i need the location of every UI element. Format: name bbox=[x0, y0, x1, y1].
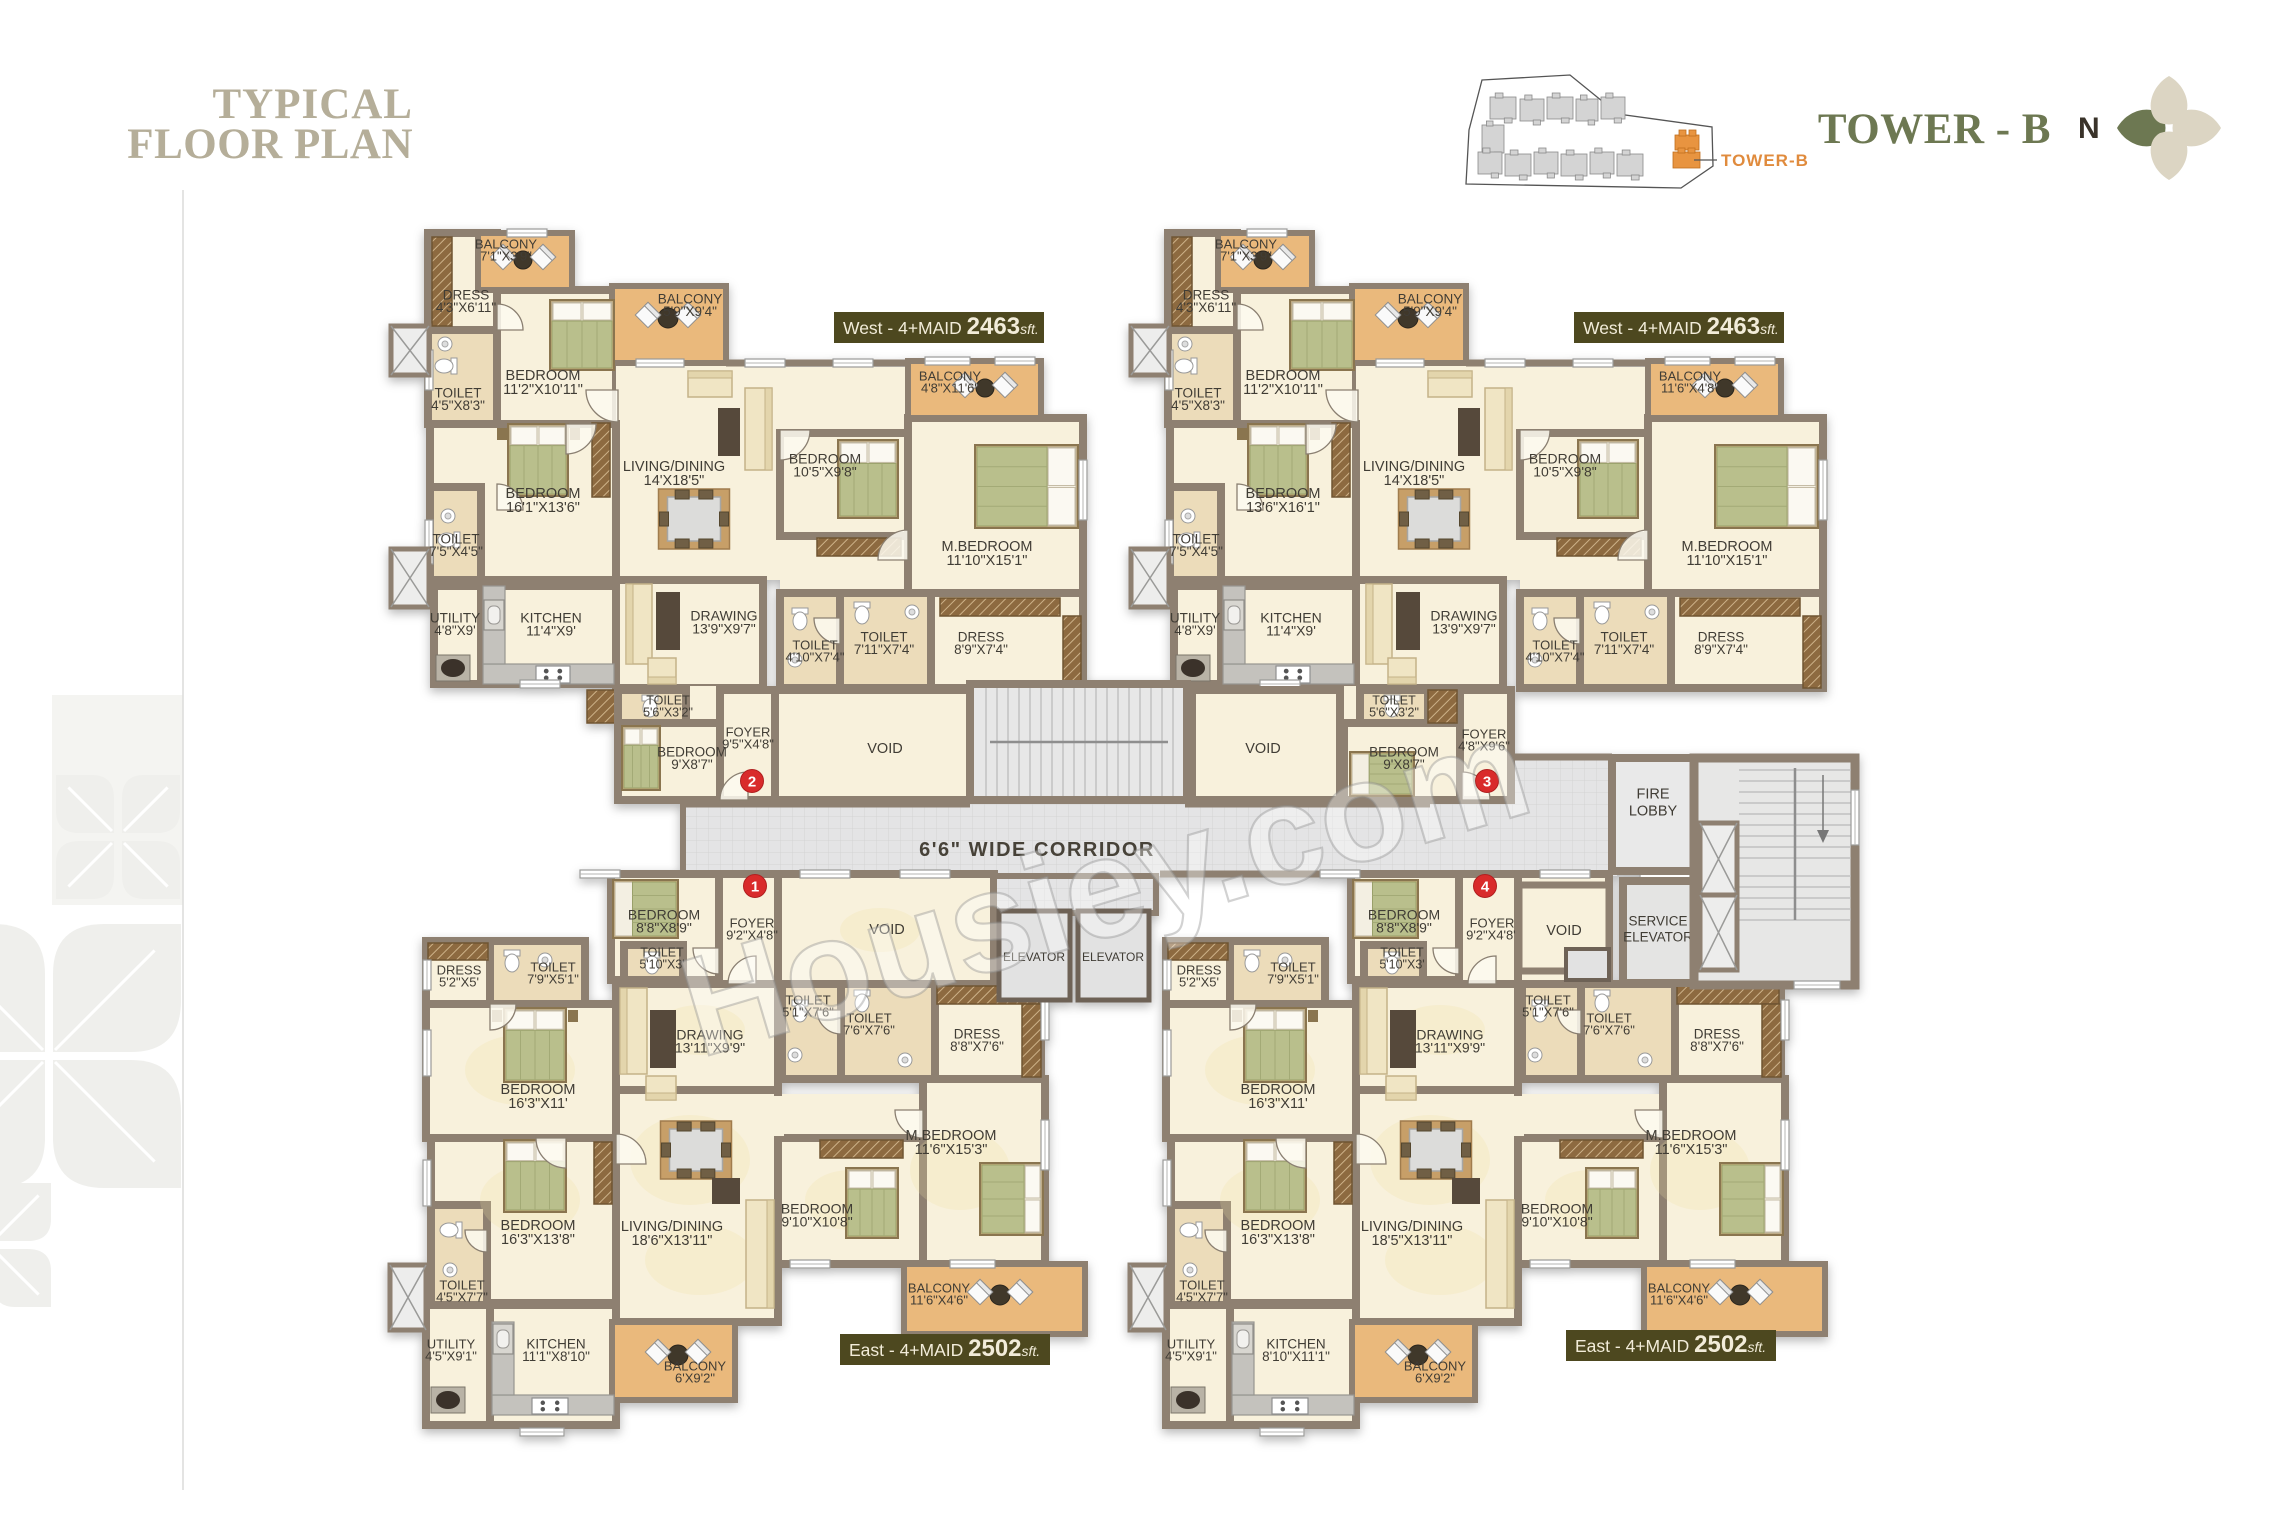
svg-text:TOILET7'9"X5'1": TOILET7'9"X5'1" bbox=[1267, 959, 1319, 986]
svg-text:BALCONY4'8"X11'6": BALCONY4'8"X11'6" bbox=[919, 368, 981, 395]
svg-text:DRAWING13'9"X9'7": DRAWING13'9"X9'7" bbox=[690, 607, 757, 636]
svg-text:West - 4+MAID 2463sft.: West - 4+MAID 2463sft. bbox=[843, 313, 1039, 340]
svg-text:BEDROOM16'3"X13'8": BEDROOM16'3"X13'8" bbox=[501, 1218, 576, 1248]
svg-text:FLOOR PLAN: FLOOR PLAN bbox=[127, 121, 413, 168]
svg-text:BEDROOM9'10"X10'8": BEDROOM9'10"X10'8" bbox=[1521, 1200, 1593, 1229]
svg-text:DRESS5'2"X5': DRESS5'2"X5' bbox=[437, 962, 482, 989]
svg-text:BEDROOM8'8"X8'9": BEDROOM8'8"X8'9" bbox=[1368, 906, 1440, 935]
svg-text:DRESS8'9"X7'4": DRESS8'9"X7'4" bbox=[954, 629, 1008, 657]
svg-text:VOID: VOID bbox=[867, 741, 902, 757]
svg-text:TOILET5'1"X7'6": TOILET5'1"X7'6" bbox=[1522, 992, 1574, 1019]
svg-text:M.BEDROOM11'10"X15'1": M.BEDROOM11'10"X15'1" bbox=[1681, 539, 1772, 569]
svg-text:KITCHEN11'1"X8'10": KITCHEN11'1"X8'10" bbox=[522, 1336, 590, 1364]
svg-text:M.BEDROOM11'10"X15'1": M.BEDROOM11'10"X15'1" bbox=[941, 539, 1032, 569]
svg-text:DRAWING13'11"X9'9": DRAWING13'11"X9'9" bbox=[1415, 1026, 1485, 1055]
svg-text:KITCHEN8'10"X11'1": KITCHEN8'10"X11'1" bbox=[1262, 1336, 1330, 1364]
svg-text:FOYER9'2"X4'8": FOYER9'2"X4'8" bbox=[1466, 915, 1518, 942]
svg-text:BEDROOM11'2"X10'11": BEDROOM11'2"X10'11" bbox=[1243, 368, 1323, 398]
svg-text:DRESS8'9"X7'4": DRESS8'9"X7'4" bbox=[1694, 629, 1748, 657]
svg-text:TOILET7'9"X5'1": TOILET7'9"X5'1" bbox=[527, 959, 579, 986]
svg-text:TOILET7'6"X7'6": TOILET7'6"X7'6" bbox=[1583, 1010, 1635, 1037]
svg-text:VOID: VOID bbox=[1546, 923, 1581, 939]
svg-text:DRESS5'2"X5': DRESS5'2"X5' bbox=[1177, 962, 1222, 989]
svg-text:BEDROOM11'2"X10'11": BEDROOM11'2"X10'11" bbox=[503, 368, 583, 398]
svg-text:BALCONY7'1"X3'9": BALCONY7'1"X3'9" bbox=[1215, 236, 1277, 263]
svg-text:TOWER - B: TOWER - B bbox=[1818, 106, 2051, 153]
svg-text:TOILET4'5"X7'7": TOILET4'5"X7'7" bbox=[436, 1277, 488, 1304]
svg-text:DRESS4'3"X6'11": DRESS4'3"X6'11" bbox=[436, 287, 496, 315]
svg-text:BEDROOM9'10"X10'8": BEDROOM9'10"X10'8" bbox=[781, 1200, 853, 1229]
svg-text:BEDROOM16'3"X11': BEDROOM16'3"X11' bbox=[1241, 1082, 1316, 1112]
svg-text:2: 2 bbox=[748, 774, 756, 791]
svg-text:TOILET5'10"X3': TOILET5'10"X3' bbox=[1379, 945, 1424, 971]
svg-text:TOILET4'5"X8'3": TOILET4'5"X8'3" bbox=[1171, 385, 1225, 413]
svg-text:TOILET7'5"X4'5": TOILET7'5"X4'5" bbox=[429, 531, 483, 559]
svg-text:West - 4+MAID 2463sft.: West - 4+MAID 2463sft. bbox=[1583, 313, 1779, 340]
svg-text:1: 1 bbox=[751, 879, 759, 896]
svg-text:M.BEDROOM11'6"X15'3": M.BEDROOM11'6"X15'3" bbox=[905, 1128, 996, 1158]
svg-text:BALCONY7'1"X3'9": BALCONY7'1"X3'9" bbox=[475, 236, 537, 263]
svg-text:UTILITY4'8"X9': UTILITY4'8"X9' bbox=[430, 610, 480, 638]
svg-text:BEDROOM16'3"X13'8": BEDROOM16'3"X13'8" bbox=[1241, 1218, 1316, 1248]
svg-text:TOILET5'6"X3'2": TOILET5'6"X3'2" bbox=[643, 693, 693, 719]
svg-text:SERVICEELEVATOR: SERVICEELEVATOR bbox=[1623, 914, 1693, 945]
svg-text:BALCONY5'9"X9'4": BALCONY5'9"X9'4" bbox=[1398, 291, 1463, 319]
svg-text:BALCONY11'6"X4'8": BALCONY11'6"X4'8" bbox=[1659, 368, 1721, 395]
svg-text:BALCONY5'9"X9'4": BALCONY5'9"X9'4" bbox=[658, 291, 723, 319]
svg-text:LIVING/DINING18'5"X13'11": LIVING/DINING18'5"X13'11" bbox=[1361, 1219, 1463, 1249]
svg-text:LIVING/DINING18'6"X13'11": LIVING/DINING18'6"X13'11" bbox=[621, 1219, 723, 1249]
svg-text:BALCONY11'6"X4'6": BALCONY11'6"X4'6" bbox=[1648, 1280, 1710, 1307]
svg-text:TOILET4'10"X7'4": TOILET4'10"X7'4" bbox=[1525, 637, 1584, 664]
svg-text:KITCHEN11'4"X9': KITCHEN11'4"X9' bbox=[1260, 609, 1321, 638]
svg-text:FOYER9'5"X4'8": FOYER9'5"X4'8" bbox=[722, 724, 774, 751]
svg-text:UTILITY4'5"X9'1": UTILITY4'5"X9'1" bbox=[425, 1336, 477, 1363]
svg-text:BEDROOM16'3"X11': BEDROOM16'3"X11' bbox=[501, 1082, 576, 1112]
svg-text:TOILET4'10"X7'4": TOILET4'10"X7'4" bbox=[785, 637, 844, 664]
svg-text:East - 4+MAID 2502sft.: East - 4+MAID 2502sft. bbox=[849, 1335, 1040, 1362]
svg-text:BALCONY11'6"X4'6": BALCONY11'6"X4'6" bbox=[908, 1280, 970, 1307]
svg-text:KITCHEN11'4"X9': KITCHEN11'4"X9' bbox=[520, 609, 581, 638]
svg-text:N: N bbox=[2078, 112, 2100, 145]
svg-text:DRAWING13'9"X9'7": DRAWING13'9"X9'7" bbox=[1430, 607, 1497, 636]
svg-text:DRESS8'8"X7'6": DRESS8'8"X7'6" bbox=[1690, 1026, 1744, 1054]
svg-text:DRESS4'3"X6'11": DRESS4'3"X6'11" bbox=[1176, 287, 1236, 315]
svg-text:BEDROOM16'1"X13'6": BEDROOM16'1"X13'6" bbox=[506, 486, 581, 516]
svg-text:BEDROOM10'5"X9'8": BEDROOM10'5"X9'8" bbox=[789, 450, 861, 479]
svg-text:TOILET7'5"X4'5": TOILET7'5"X4'5" bbox=[1169, 531, 1223, 559]
svg-text:4: 4 bbox=[1481, 879, 1490, 896]
svg-text:TOILET7'11"X7'4": TOILET7'11"X7'4" bbox=[1594, 629, 1654, 657]
svg-text:TOILET4'5"X7'7": TOILET4'5"X7'7" bbox=[1176, 1277, 1228, 1304]
svg-text:TOILET7'11"X7'4": TOILET7'11"X7'4" bbox=[854, 629, 914, 657]
svg-text:BEDROOM10'5"X9'8": BEDROOM10'5"X9'8" bbox=[1529, 450, 1601, 479]
svg-text:UTILITY4'8"X9': UTILITY4'8"X9' bbox=[1170, 610, 1220, 638]
svg-text:M.BEDROOM11'6"X15'3": M.BEDROOM11'6"X15'3" bbox=[1645, 1128, 1736, 1158]
svg-text:TOWER-B: TOWER-B bbox=[1721, 151, 1809, 170]
svg-text:BEDROOM13'6"X16'1": BEDROOM13'6"X16'1" bbox=[1246, 486, 1321, 516]
svg-text:DRESS8'8"X7'6": DRESS8'8"X7'6" bbox=[950, 1026, 1004, 1054]
svg-text:East - 4+MAID 2502sft.: East - 4+MAID 2502sft. bbox=[1575, 1331, 1766, 1358]
svg-text:TOILET4'5"X8'3": TOILET4'5"X8'3" bbox=[431, 385, 485, 413]
svg-text:UTILITY4'5"X9'1": UTILITY4'5"X9'1" bbox=[1165, 1336, 1217, 1363]
